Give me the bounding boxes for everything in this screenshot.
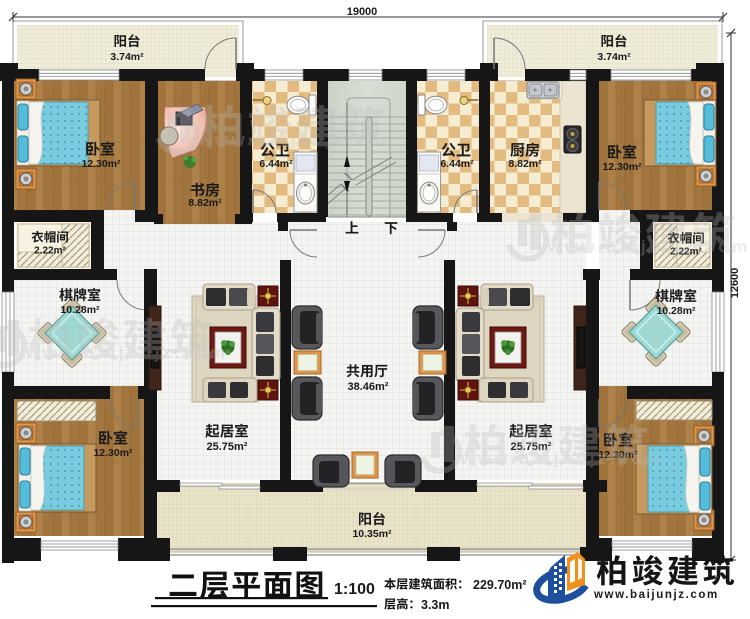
- svg-text:www.baijunjz.com: www.baijunjz.com: [593, 589, 719, 601]
- svg-text:www.baijunjz.com: www.baijunjz.com: [25, 343, 229, 362]
- svg-text:www.baijunjz.com: www.baijunjz.com: [547, 237, 750, 256]
- svg-text:25.75m²: 25.75m²: [207, 441, 248, 453]
- svg-text:3.74m²: 3.74m²: [597, 51, 631, 63]
- svg-text:6.44m²: 6.44m²: [440, 158, 474, 170]
- svg-text:229.70m²: 229.70m²: [473, 578, 527, 592]
- svg-text:3.74m²: 3.74m²: [110, 51, 144, 63]
- svg-text:12.30m²: 12.30m²: [602, 161, 642, 173]
- svg-text:10.35m²: 10.35m²: [352, 528, 392, 540]
- svg-text:10.28m²: 10.28m²: [60, 304, 100, 316]
- svg-text:6.44m²: 6.44m²: [259, 158, 293, 170]
- svg-text:19000: 19000: [347, 6, 378, 18]
- svg-text:www.baijunjz.com: www.baijunjz.com: [197, 130, 401, 149]
- svg-text:8.82m²: 8.82m²: [508, 158, 542, 170]
- svg-text:8.82m²: 8.82m²: [188, 197, 222, 209]
- svg-text:12600: 12600: [729, 268, 741, 299]
- svg-text:2.22m²: 2.22m²: [34, 246, 66, 257]
- svg-text:12.30m²: 12.30m²: [93, 447, 133, 459]
- svg-text:3.3m: 3.3m: [421, 598, 450, 612]
- svg-text:10.28m²: 10.28m²: [656, 305, 696, 317]
- svg-text:www.baijunjz.com: www.baijunjz.com: [460, 449, 664, 468]
- svg-text:38.46m²: 38.46m²: [348, 381, 389, 393]
- svg-text:1:100: 1:100: [334, 581, 375, 598]
- svg-text:12.30m²: 12.30m²: [81, 158, 121, 170]
